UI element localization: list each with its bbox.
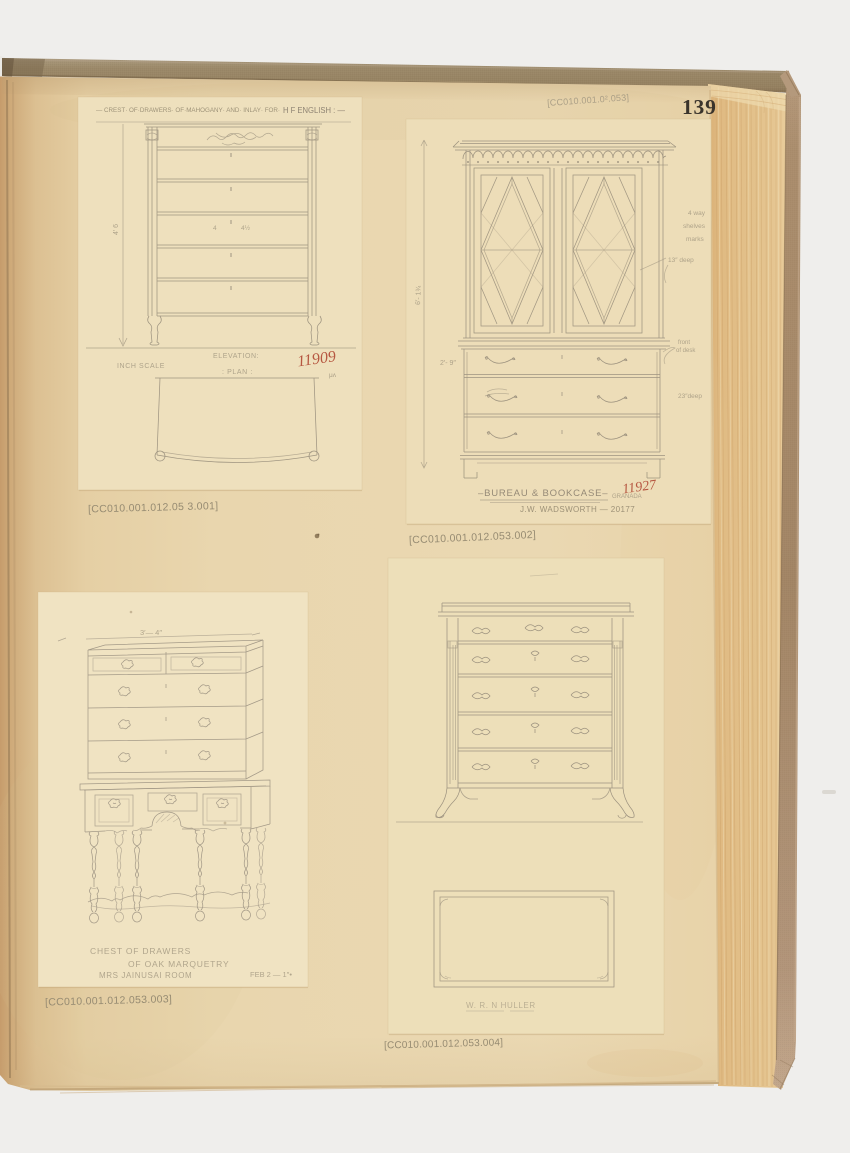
svg-text:J.W. WADSWORTH — 20177: J.W. WADSWORTH — 20177 — [520, 505, 635, 514]
svg-text:4′ 6: 4′ 6 — [113, 224, 120, 235]
svg-text:shelves: shelves — [683, 223, 706, 230]
svg-text:FEB 2 — 1″•: FEB 2 — 1″• — [250, 970, 292, 979]
svg-text:W. R. N HULLER: W. R. N HULLER — [466, 1001, 536, 1010]
svg-text:13″ deep: 13″ deep — [668, 257, 694, 264]
svg-text:μʌ: μʌ — [329, 372, 337, 379]
svg-text:–BUREAU & BOOKCASE–: –BUREAU & BOOKCASE– — [478, 488, 608, 499]
svg-text:2′- 9″: 2′- 9″ — [440, 360, 456, 367]
svg-text:23″deep: 23″deep — [678, 393, 702, 400]
svg-text:CHEST OF DRAWERS: CHEST OF DRAWERS — [90, 946, 191, 956]
svg-text:6′- 1¾: 6′- 1¾ — [415, 285, 423, 305]
svg-text:: PLAN :: : PLAN : — [222, 369, 253, 376]
svg-text:4: 4 — [213, 225, 217, 232]
svg-text:139: 139 — [682, 95, 717, 119]
svg-text:INCH SCALE: INCH SCALE — [117, 363, 165, 370]
svg-text:of desk: of desk — [676, 348, 696, 354]
svg-text:front: front — [678, 340, 690, 346]
svg-text:marks: marks — [686, 236, 704, 243]
svg-text:3′— 4″: 3′— 4″ — [140, 628, 162, 637]
svg-text:4½: 4½ — [241, 224, 251, 232]
svg-text:OF OAK MARQUETRY: OF OAK MARQUETRY — [128, 959, 229, 969]
svg-text:— CREST· OF·DRAWERS· OF·MAHOGA: — CREST· OF·DRAWERS· OF·MAHOGANY· AND· I… — [96, 107, 280, 114]
svg-text:MRS JAINUSAI ROOM: MRS JAINUSAI ROOM — [99, 971, 192, 980]
svg-text:ELEVATION:: ELEVATION: — [213, 353, 259, 360]
svg-text:H F ENGLISH : —: H F ENGLISH : — — [283, 106, 345, 115]
svg-text:4 way: 4 way — [688, 210, 706, 217]
